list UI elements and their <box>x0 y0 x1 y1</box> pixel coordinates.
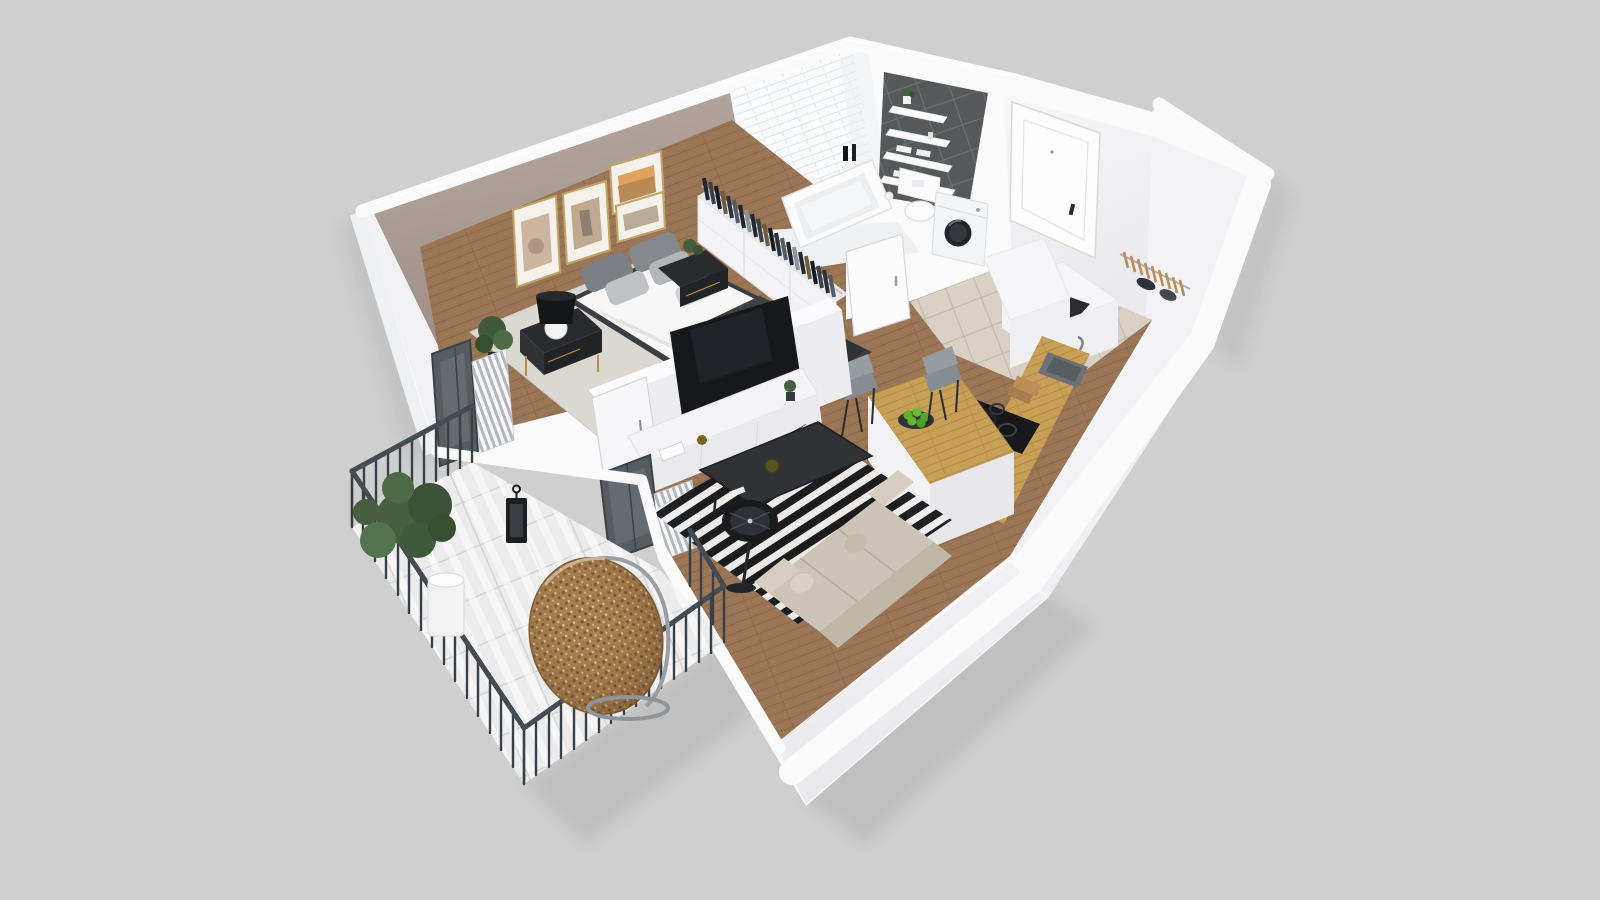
art-frame <box>513 196 560 287</box>
peephole-icon <box>1050 150 1053 153</box>
art-frame <box>563 181 610 264</box>
plant-icon <box>784 380 796 392</box>
bathroom-door[interactable] <box>846 234 910 336</box>
glass-vase <box>765 459 779 473</box>
floorplan-canvas <box>0 0 1600 900</box>
bath-bottle <box>843 146 848 161</box>
washing-machine <box>932 192 988 266</box>
toilet-paper-holder <box>885 192 893 200</box>
shelf-jar <box>928 132 933 139</box>
glass-cup <box>697 435 707 445</box>
floorplan-render <box>0 0 1600 900</box>
radiator <box>472 349 514 453</box>
bath-bottle <box>852 144 856 161</box>
